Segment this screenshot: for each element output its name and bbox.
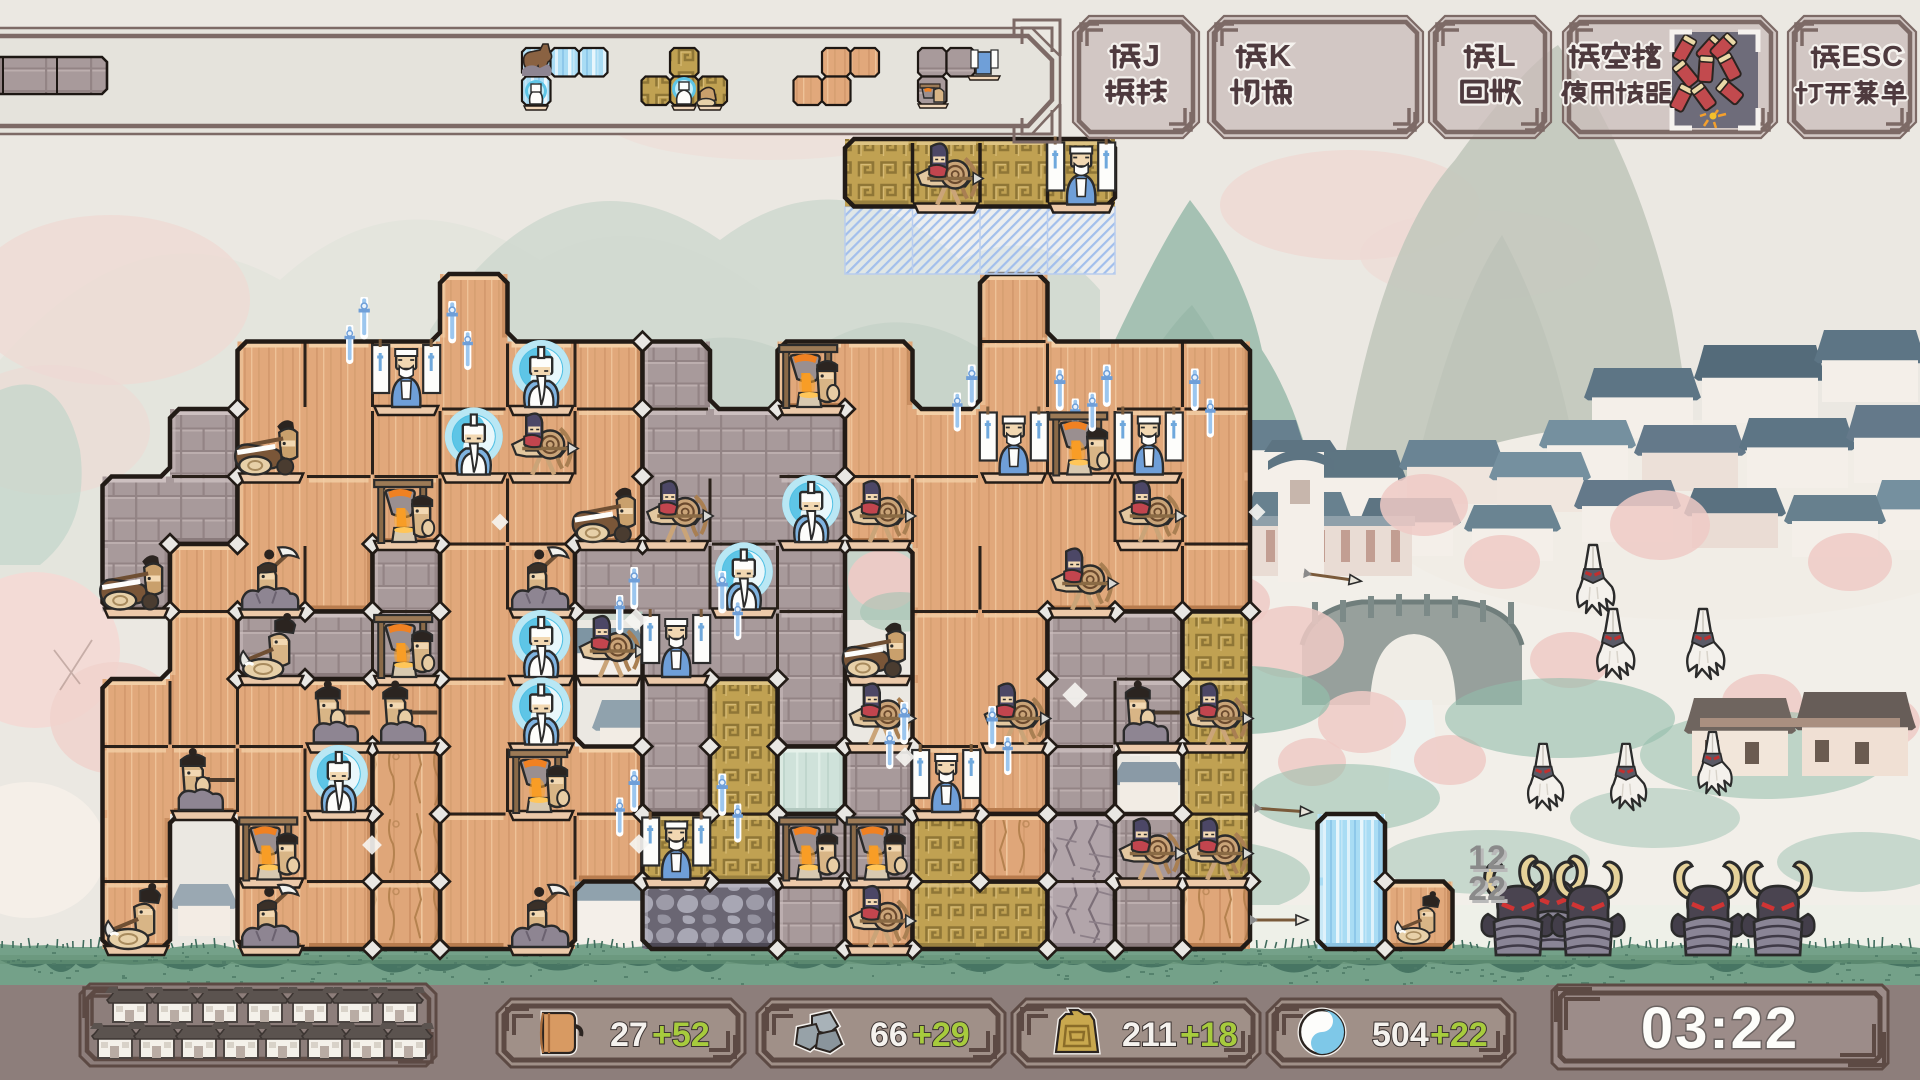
svg-text:+29: +29	[912, 1016, 970, 1054]
svg-text:211: 211	[1122, 1016, 1177, 1054]
svg-text:L: L	[1497, 38, 1517, 73]
svg-text:03:22: 03:22	[1641, 996, 1799, 1061]
svg-text:+22: +22	[1430, 1016, 1488, 1054]
svg-text:J: J	[1143, 38, 1161, 73]
svg-text:66: 66	[870, 1016, 908, 1054]
svg-text:27: 27	[610, 1016, 648, 1054]
svg-text:K: K	[1269, 38, 1292, 73]
svg-text:+18: +18	[1180, 1016, 1238, 1054]
svg-text:22: 22	[1468, 870, 1506, 908]
svg-text:+52: +52	[652, 1016, 710, 1054]
svg-text:504: 504	[1372, 1016, 1429, 1054]
svg-text:ESC: ESC	[1842, 41, 1905, 73]
